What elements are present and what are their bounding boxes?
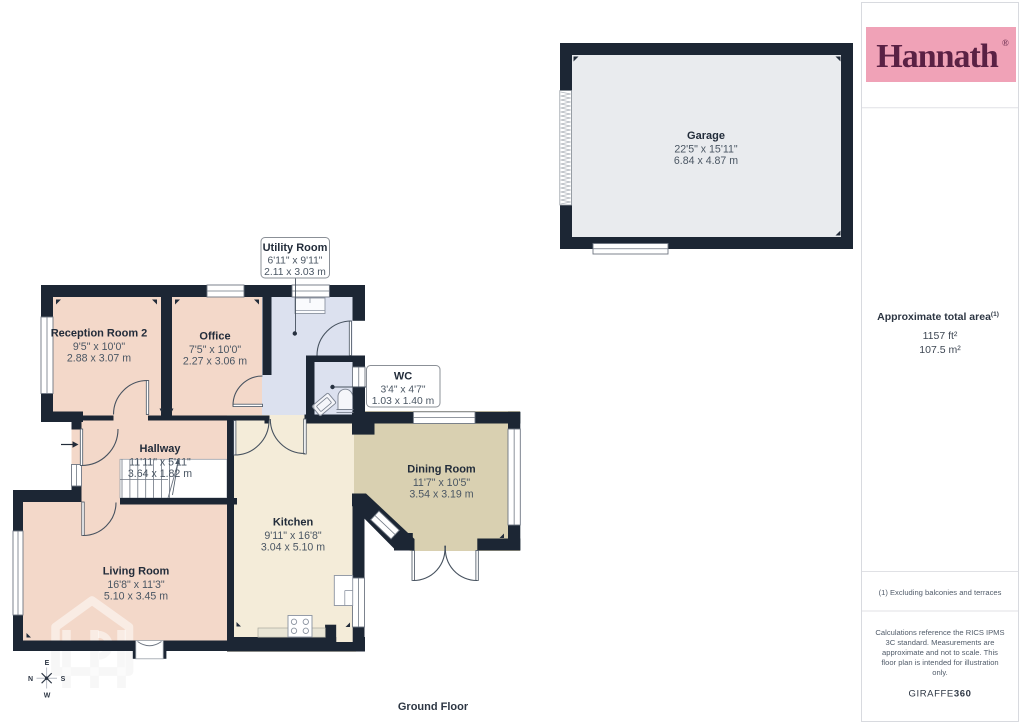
svg-text:Reception Room 2: Reception Room 2 <box>51 328 148 340</box>
svg-text:E: E <box>45 660 50 667</box>
svg-text:Hannath: Hannath <box>876 38 999 75</box>
svg-text:9'11" x 16'8": 9'11" x 16'8" <box>264 530 322 542</box>
svg-text:3.64 x 1.82 m: 3.64 x 1.82 m <box>128 468 192 480</box>
svg-text:9'5" x 10'0": 9'5" x 10'0" <box>73 341 125 353</box>
svg-text:S: S <box>61 676 66 683</box>
svg-text:1157 ft²: 1157 ft² <box>923 330 958 342</box>
svg-text:11'7" x 10'5": 11'7" x 10'5" <box>413 477 471 489</box>
svg-text:Approximate total area(1): Approximate total area(1) <box>877 311 999 323</box>
svg-text:(1) Excluding balconies and te: (1) Excluding balconies and terraces <box>879 588 1002 597</box>
svg-text:Ground Floor: Ground Floor <box>398 701 469 713</box>
svg-text:Garage: Garage <box>687 130 725 142</box>
svg-text:WC: WC <box>394 371 412 383</box>
svg-text:2.88 x 3.07 m: 2.88 x 3.07 m <box>67 353 131 365</box>
svg-text:Hallway: Hallway <box>140 443 182 455</box>
svg-text:3.04 x 5.10 m: 3.04 x 5.10 m <box>261 542 325 554</box>
svg-text:6.84 x 4.87 m: 6.84 x 4.87 m <box>674 155 738 167</box>
svg-text:2.27 x 3.06 m: 2.27 x 3.06 m <box>183 356 247 368</box>
svg-text:2.11 x 3.03 m: 2.11 x 3.03 m <box>264 267 326 278</box>
svg-text:GIRAFFE360: GIRAFFE360 <box>908 689 971 700</box>
svg-text:Living Room: Living Room <box>103 566 170 578</box>
svg-text:11'11" x 5'11": 11'11" x 5'11" <box>129 457 191 469</box>
svg-text:Kitchen: Kitchen <box>273 517 314 529</box>
svg-text:W: W <box>44 693 51 700</box>
svg-text:3.54 x 3.19 m: 3.54 x 3.19 m <box>409 489 473 501</box>
svg-text:1.03 x 1.40 m: 1.03 x 1.40 m <box>372 396 434 407</box>
svg-text:22'5" x 15'11": 22'5" x 15'11" <box>674 144 737 156</box>
svg-text:only.: only. <box>932 668 947 677</box>
svg-text:Calculations reference the RIC: Calculations reference the RICS IPMS <box>875 628 1004 637</box>
svg-text:approximate and not to scale.: approximate and not to scale. This <box>882 648 998 657</box>
svg-text:6'11" x 9'11": 6'11" x 9'11" <box>268 256 323 267</box>
svg-text:3'4" x 4'7": 3'4" x 4'7" <box>380 385 425 396</box>
svg-text:Dining Room: Dining Room <box>407 464 476 476</box>
svg-text:16'8" x 11'3": 16'8" x 11'3" <box>107 579 165 591</box>
svg-text:3C standard. Measurements are: 3C standard. Measurements are <box>886 638 995 647</box>
svg-text:N: N <box>28 676 33 683</box>
svg-text:107.5 m²: 107.5 m² <box>919 344 961 356</box>
svg-text:floor plan is intended for ill: floor plan is intended for illustration <box>881 658 998 667</box>
svg-text:5.10 x 3.45 m: 5.10 x 3.45 m <box>104 591 168 603</box>
svg-text:Utility Room: Utility Room <box>263 242 328 254</box>
svg-text:®: ® <box>1002 38 1009 48</box>
svg-text:7'5" x 10'0": 7'5" x 10'0" <box>189 344 241 356</box>
svg-text:Office: Office <box>199 331 230 343</box>
